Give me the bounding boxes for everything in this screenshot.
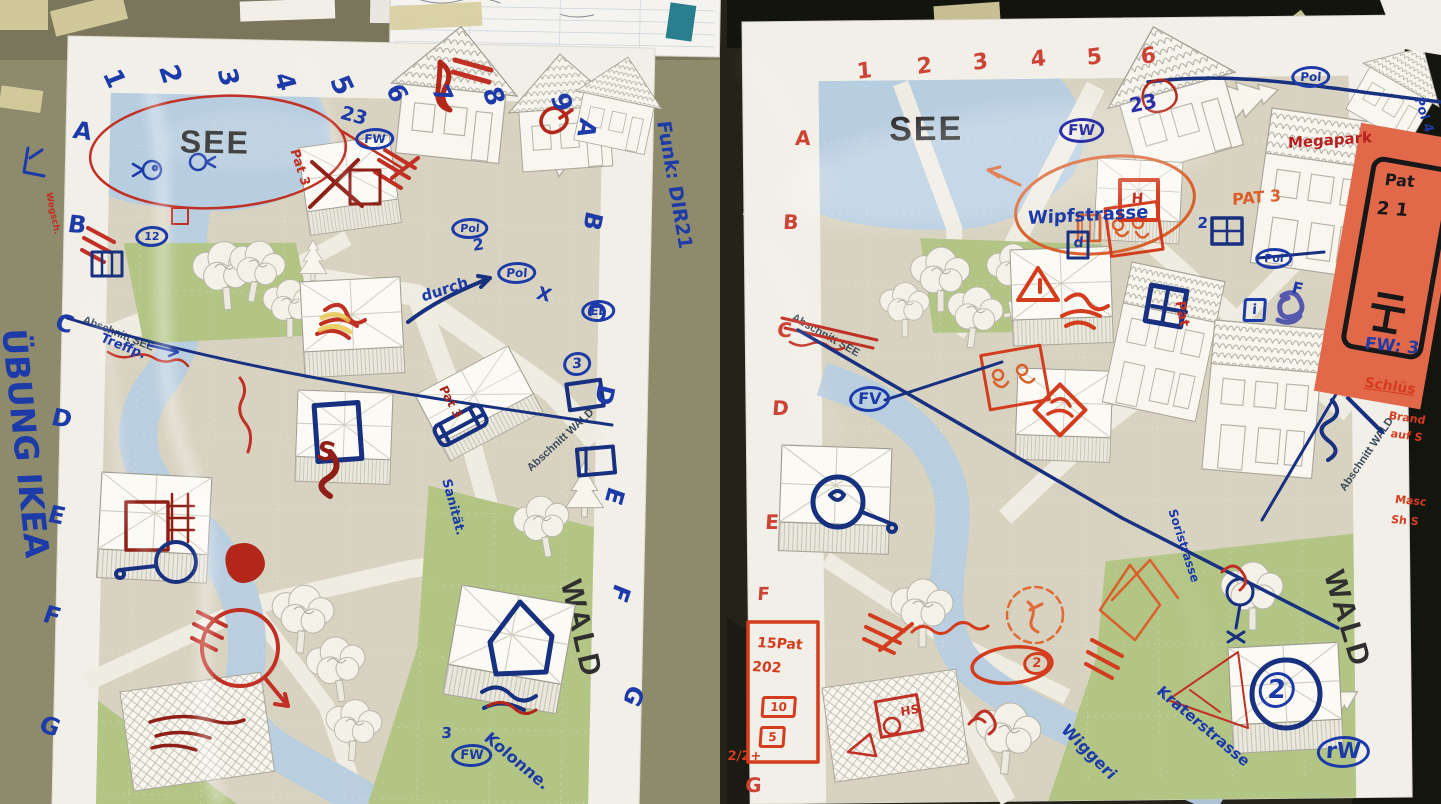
photo-scene: SEE WALD Abschnitt SEE Abschnitt WALD xyxy=(0,0,1441,804)
tabletop-exercise-photo: SEE WALD Abschnitt SEE Abschnitt WALD xyxy=(0,0,1441,804)
